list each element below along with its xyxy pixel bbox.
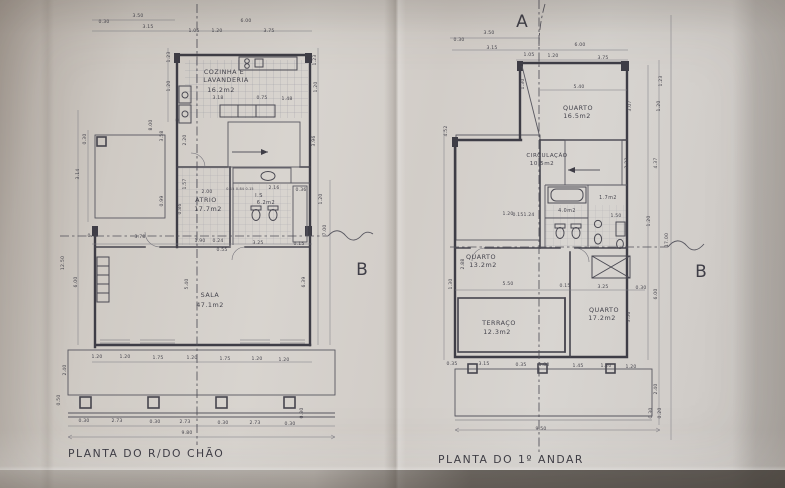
floor-plan-photo: 3.500.303.156.001.051.203.751.231.201.23… <box>0 0 785 488</box>
photo-vignette <box>0 0 785 488</box>
